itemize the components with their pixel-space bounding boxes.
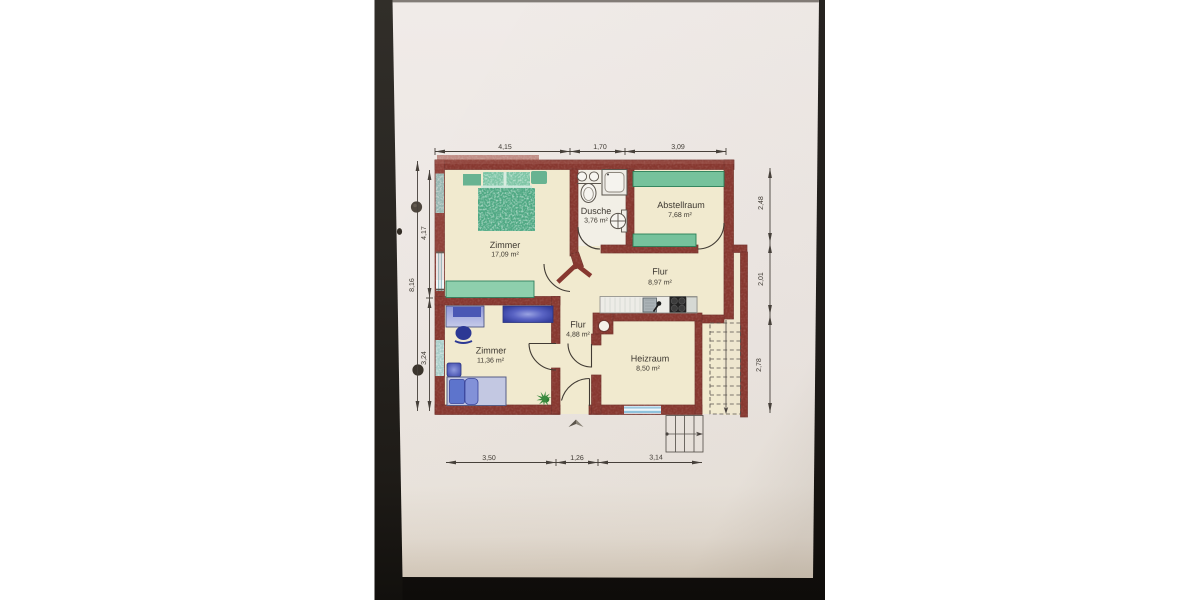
svg-text:3,24: 3,24 [421,351,428,365]
svg-text:Abstellraum: Abstellraum [657,200,705,210]
svg-text:2,78: 2,78 [756,358,763,372]
svg-text:8,16: 8,16 [409,278,416,292]
svg-text:3,14: 3,14 [649,455,663,462]
svg-text:4,17: 4,17 [421,226,428,240]
svg-text:1,70: 1,70 [593,144,607,151]
svg-text:4,88 m²: 4,88 m² [566,332,590,339]
svg-text:2,48: 2,48 [758,196,765,210]
svg-text:3,76 m²: 3,76 m² [584,218,608,225]
svg-text:Flur: Flur [652,267,668,277]
svg-text:7,68 m²: 7,68 m² [668,212,692,219]
svg-text:17,09 m²: 17,09 m² [491,252,519,259]
svg-text:4,15: 4,15 [498,144,512,151]
svg-text:Zimmer: Zimmer [490,240,521,250]
svg-text:3,09: 3,09 [671,144,685,151]
svg-text:1,26: 1,26 [570,455,584,462]
svg-text:Flur: Flur [570,320,586,330]
svg-text:3,50: 3,50 [482,455,496,462]
svg-text:8,50 m²: 8,50 m² [636,366,660,373]
svg-text:Dusche: Dusche [581,206,612,216]
svg-text:8,97 m²: 8,97 m² [648,280,672,287]
svg-text:2,01: 2,01 [758,272,765,286]
svg-text:11,36 m²: 11,36 m² [477,358,505,365]
svg-text:Heizraum: Heizraum [631,354,670,364]
svg-text:Zimmer: Zimmer [476,346,507,356]
